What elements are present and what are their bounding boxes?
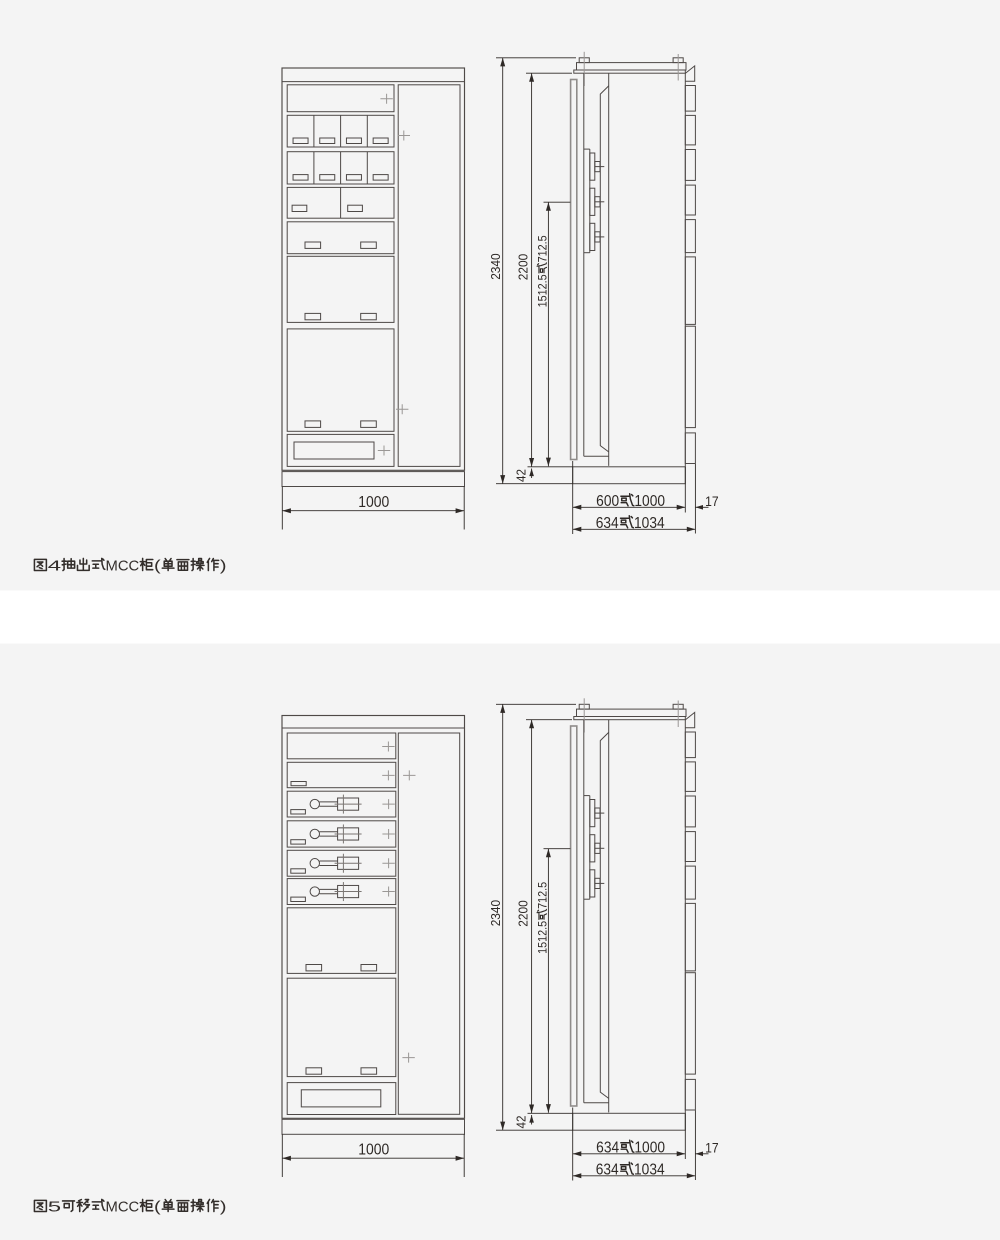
svg-text:): ) [220,1199,227,1215]
svg-text:1000: 1000 [634,1140,665,1157]
svg-text:): ) [220,558,227,574]
svg-text:42: 42 [513,1116,528,1129]
svg-text:2340: 2340 [488,900,503,926]
svg-text:5: 5 [48,1199,61,1215]
svg-text:1512.5: 1512.5 [536,921,550,954]
svg-text:2340: 2340 [488,253,503,279]
svg-text:600: 600 [596,493,619,510]
svg-text:1000: 1000 [634,493,665,510]
svg-text:2200: 2200 [515,254,530,280]
svg-text:4: 4 [48,558,61,574]
svg-text:(: ( [154,1199,161,1215]
svg-text:17: 17 [705,1141,719,1156]
svg-text:2200: 2200 [515,900,530,926]
svg-text:(: ( [154,558,161,574]
svg-text:17: 17 [705,494,719,509]
svg-text:1512.5: 1512.5 [536,274,550,307]
svg-text:712.5: 712.5 [536,235,550,262]
svg-text:712.5: 712.5 [536,882,550,909]
svg-text:MCC: MCC [106,1199,140,1215]
svg-text:1034: 1034 [634,1162,665,1179]
svg-text:1000: 1000 [358,1141,389,1158]
svg-text:1034: 1034 [634,515,665,532]
svg-text:MCC: MCC [106,558,140,574]
svg-text:634: 634 [596,1140,619,1157]
svg-text:634: 634 [596,1162,619,1179]
svg-text:634: 634 [596,515,619,532]
svg-text:42: 42 [513,469,528,482]
svg-text:1000: 1000 [358,494,389,511]
